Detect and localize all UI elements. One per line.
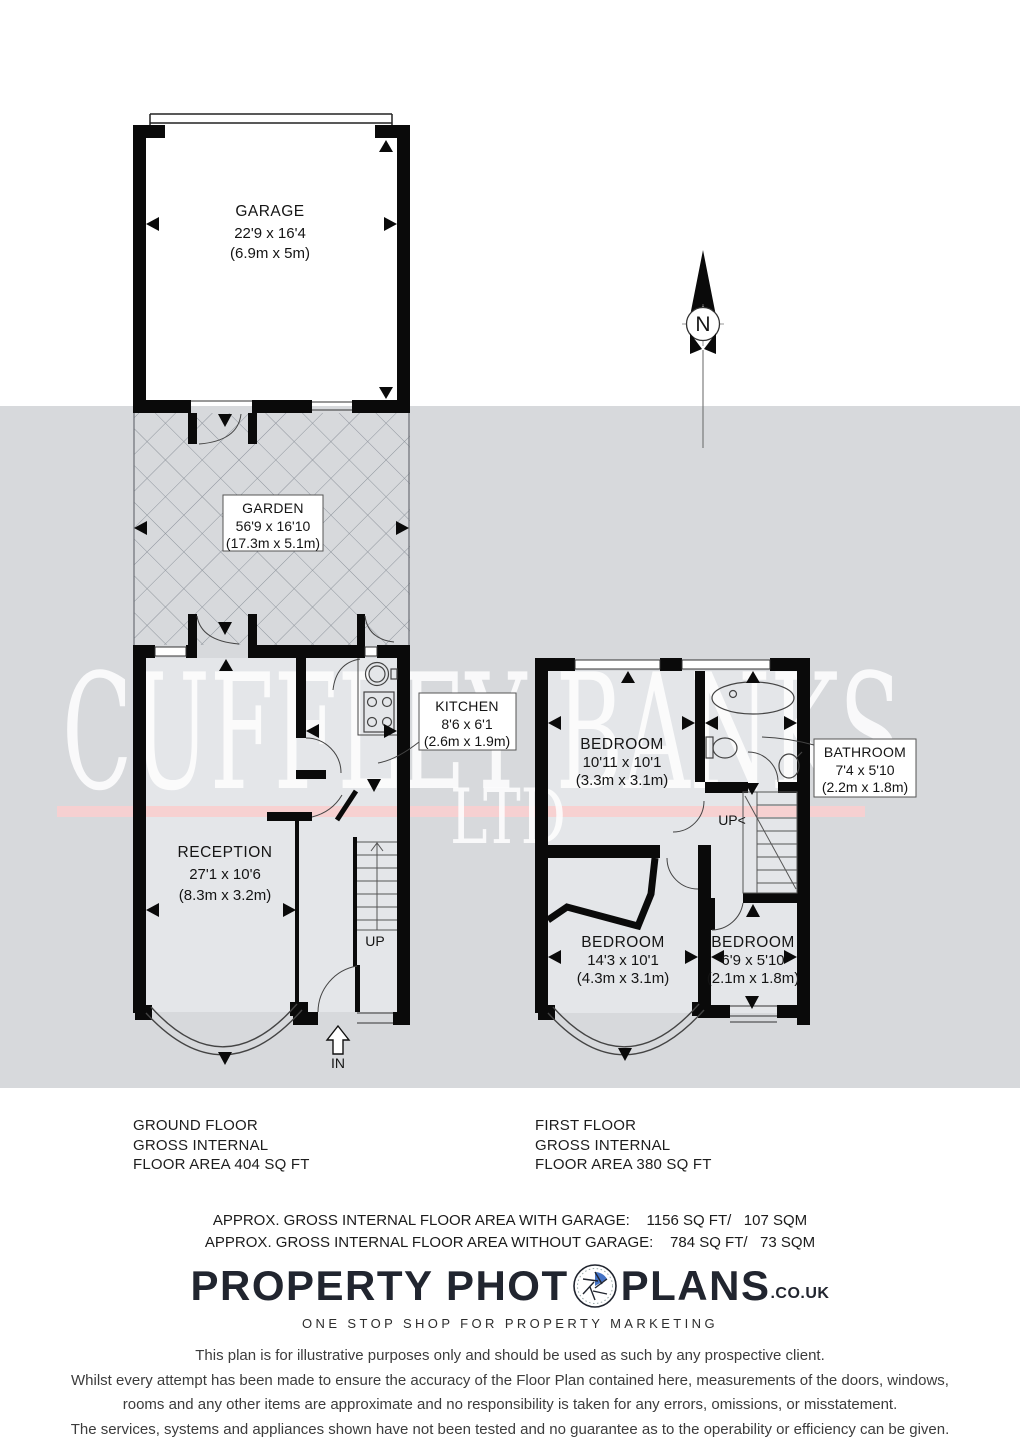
reception-dim-imperial: 27'1 x 10'6 <box>189 866 261 883</box>
garage-door <box>150 114 392 125</box>
logo-text-left: PROPERTY PHOT <box>191 1262 569 1310</box>
bathroom-dim-metric: (2.2m x 1.8m) <box>822 779 908 795</box>
kitchen-dim-metric: (2.6m x 1.9m) <box>424 733 510 749</box>
first-floor-title: FIRST FLOOR <box>535 1116 712 1136</box>
bedroom2-dim-imperial: 14'3 x 10'1 <box>587 952 659 969</box>
garage-name: GARAGE <box>235 203 304 220</box>
logo-domain: .CO.UK <box>770 1285 829 1310</box>
area-totals: APPROX. GROSS INTERNAL FLOOR AREA WITH G… <box>0 1210 1020 1254</box>
disclaimer-line1: This plan is for illustrative purposes o… <box>0 1344 1020 1369</box>
garden-name: GARDEN <box>242 500 304 516</box>
disclaimer-line3: rooms and any other items are approximat… <box>0 1393 1020 1418</box>
bedroom3-dim-imperial: 6'9 x 5'10 <box>721 952 784 969</box>
garden-dim-metric: (17.3m x 5.1m) <box>226 535 320 551</box>
bedroom1-dim-metric: (3.3m x 3.1m) <box>576 772 669 789</box>
logo-text-right: PLANS <box>621 1262 771 1310</box>
bedroom2-dim-metric: (4.3m x 3.1m) <box>577 970 670 987</box>
bedroom3-name: BEDROOM <box>711 934 795 951</box>
kitchen-name: KITCHEN <box>435 698 499 714</box>
brand-logo: PROPERTY PHOT PLANS .CO.UK <box>0 1262 1020 1310</box>
brand-tagline: ONE STOP SHOP FOR PROPERTY MARKETING <box>0 1316 1020 1331</box>
ground-floor-gross: GROSS INTERNAL <box>133 1136 310 1156</box>
disclaimer-line2: Whilst every attempt has been made to en… <box>0 1369 1020 1394</box>
total-without-garage: APPROX. GROSS INTERNAL FLOOR AREA WITHOU… <box>0 1232 1020 1254</box>
garage-label: GARAGE 22'9 x 16'4 (6.9m x 5m) <box>230 203 310 262</box>
bathroom-name: BATHROOM <box>824 744 906 760</box>
total-with-garage: APPROX. GROSS INTERNAL FLOOR AREA WITH G… <box>0 1210 1020 1232</box>
first-floor-gross: GROSS INTERNAL <box>535 1136 712 1156</box>
bedroom1-dim-imperial: 10'11 x 10'1 <box>583 754 662 771</box>
reception-dim-metric: (8.3m x 3.2m) <box>179 887 272 904</box>
up-label-ground: UP <box>365 933 384 949</box>
bedroom3-dim-metric: (2.1m x 1.8m) <box>707 970 800 987</box>
reception-name: RECEPTION <box>178 844 273 861</box>
ground-floor-title: GROUND FLOOR <box>133 1116 310 1136</box>
garage-dim-metric: (6.9m x 5m) <box>230 245 310 262</box>
disclaimer: This plan is for illustrative purposes o… <box>0 1344 1020 1442</box>
aperture-icon <box>572 1263 618 1309</box>
bedroom1-name: BEDROOM <box>580 736 664 753</box>
bathroom-dim-imperial: 7'4 x 5'10 <box>835 762 894 778</box>
first-floor-area: FLOOR AREA 380 SQ FT <box>535 1155 712 1175</box>
ground-floor-area: FLOOR AREA 404 SQ FT <box>133 1155 310 1175</box>
compass-letter: N <box>695 313 710 336</box>
ground-floor-summary: GROUND FLOOR GROSS INTERNAL FLOOR AREA 4… <box>133 1116 310 1175</box>
first-floor-summary: FIRST FLOOR GROSS INTERNAL FLOOR AREA 38… <box>535 1116 712 1175</box>
bedroom2-name: BEDROOM <box>581 934 665 951</box>
kitchen-dim-imperial: 8'6 x 6'1 <box>441 716 492 732</box>
garage-dim-imperial: 22'9 x 16'4 <box>234 225 306 242</box>
up-label-first: UP< <box>718 812 746 828</box>
disclaimer-line4: The services, systems and appliances sho… <box>0 1418 1020 1443</box>
garage-interior <box>146 138 397 400</box>
in-label: IN <box>331 1055 345 1071</box>
garden-label: GARDEN 56'9 x 16'10 (17.3m x 5.1m) <box>223 495 323 551</box>
garden-dim-imperial: 56'9 x 16'10 <box>236 518 311 534</box>
